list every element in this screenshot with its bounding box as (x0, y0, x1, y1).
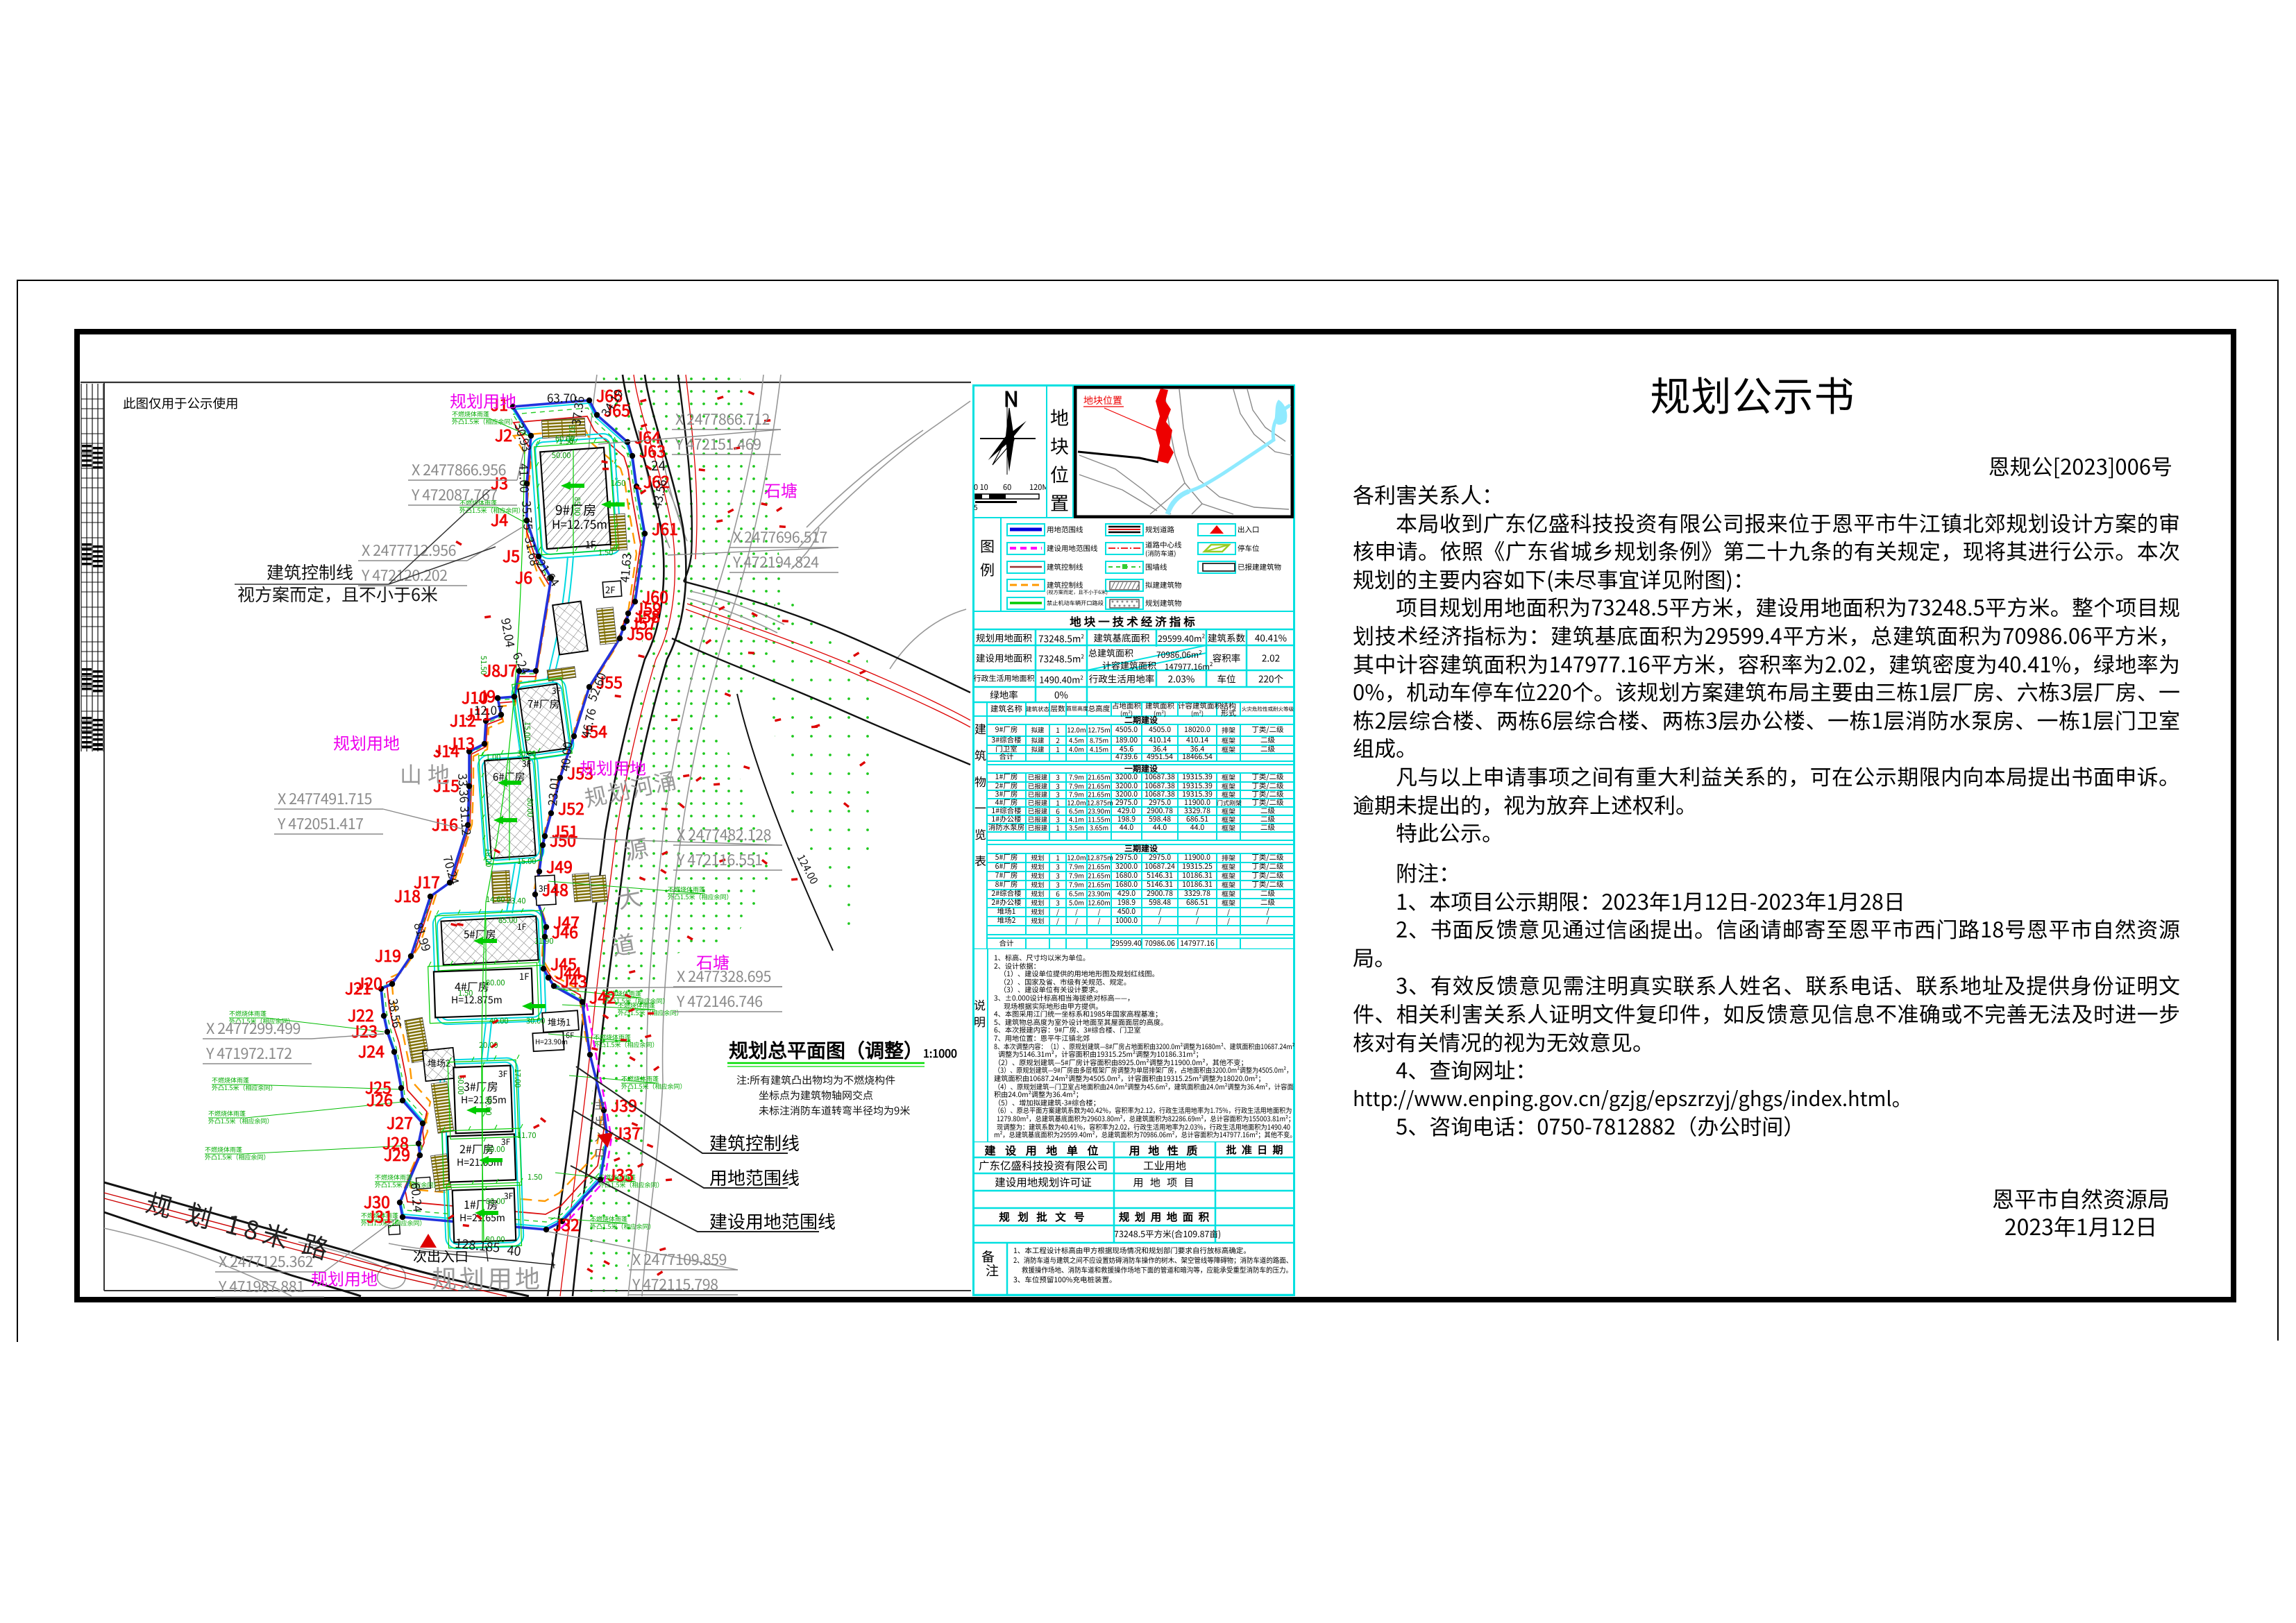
svg-text:H=12.75m: H=12.75m (552, 515, 607, 532)
svg-text:70.24: 70.24 (439, 853, 464, 886)
svg-text:J28: J28 (382, 1130, 409, 1154)
svg-text:Y 472116.551: Y 472116.551 (676, 849, 763, 870)
svg-text:1.00: 1.00 (486, 751, 500, 763)
svg-text:85.00: 85.00 (498, 915, 517, 926)
svg-text:40.00: 40.00 (555, 741, 575, 772)
svg-text:41.00: 41.00 (516, 463, 534, 493)
svg-text:J49: J49 (546, 854, 573, 878)
svg-text:X 2477712.956: X 2477712.956 (362, 539, 456, 561)
svg-text:山地: 山地 (400, 758, 455, 790)
svg-text:80.00: 80.00 (486, 1144, 505, 1155)
svg-text:12.07: 12.07 (474, 701, 503, 718)
svg-text:J8: J8 (483, 658, 500, 681)
svg-text:J20: J20 (356, 971, 382, 994)
svg-text:3F: 3F (504, 1190, 514, 1202)
svg-text:J22: J22 (348, 1003, 374, 1026)
svg-text:J61: J61 (652, 516, 678, 540)
svg-text:Y 472194.824: Y 472194.824 (732, 551, 819, 572)
svg-text:N: N (1004, 384, 1019, 413)
svg-text:60.24: 60.24 (407, 1182, 428, 1212)
svg-text:建筑控制线: 建筑控制线 (267, 559, 353, 584)
svg-text:未标注消防车道转弯半径均为9米: 未标注消防车道转弯半径均为9米 (759, 1103, 910, 1118)
svg-text:规划用地: 规划用地 (311, 1266, 378, 1290)
svg-text:80.00: 80.00 (486, 977, 505, 988)
svg-text:Y 472087.767: Y 472087.767 (411, 484, 498, 505)
svg-text:J32: J32 (553, 1212, 580, 1236)
svg-text:注:所有建筑凸出物均为不燃烧构件: 注:所有建筑凸出物均为不燃烧构件 (736, 1073, 895, 1087)
svg-text:J43: J43 (561, 969, 587, 992)
svg-text:1.50: 1.50 (598, 547, 613, 558)
svg-text:规划用地: 规划用地 (450, 388, 516, 412)
svg-text:17.00: 17.00 (512, 1069, 523, 1087)
svg-text:J13: J13 (448, 731, 475, 754)
svg-text:X 2477866.956: X 2477866.956 (412, 459, 506, 480)
svg-text:X 2477299.499: X 2477299.499 (206, 1017, 301, 1039)
svg-text:J17: J17 (414, 869, 440, 893)
svg-text:J56: J56 (627, 621, 653, 645)
svg-text:坐标点为建筑物轴网交点: 坐标点为建筑物轴网交点 (759, 1088, 873, 1103)
svg-text:J6: J6 (515, 565, 532, 588)
svg-text:1.50: 1.50 (527, 1171, 542, 1182)
svg-text:0 10: 0 10 (974, 482, 988, 493)
svg-text:15.00: 15.00 (517, 856, 536, 867)
svg-text:35.75: 35.75 (518, 500, 538, 531)
svg-text:建设用地范围线: 建设用地范围线 (709, 1208, 836, 1234)
svg-text:J46: J46 (552, 919, 578, 943)
svg-text:80.00: 80.00 (483, 1096, 494, 1115)
svg-text:X 2477491.715: X 2477491.715 (278, 788, 372, 809)
svg-text:23.40: 23.40 (507, 895, 525, 906)
svg-text:30.00: 30.00 (526, 1015, 545, 1026)
svg-text:X 2477696.517: X 2477696.517 (733, 526, 827, 547)
svg-text:用地范围线: 用地范围线 (709, 1164, 800, 1190)
svg-text:J5: J5 (503, 543, 520, 567)
svg-text:120M: 120M (1029, 482, 1046, 493)
svg-text:J2: J2 (495, 423, 512, 446)
svg-text:Y 472051.417: Y 472051.417 (277, 813, 364, 834)
svg-text:37.36: 37.36 (566, 425, 577, 443)
svg-text:1.50: 1.50 (611, 477, 625, 488)
svg-text:J30: J30 (364, 1189, 390, 1213)
svg-text:38.56: 38.56 (385, 997, 407, 1029)
svg-text:J39: J39 (611, 1093, 637, 1116)
svg-text:7#厂房: 7#厂房 (527, 697, 560, 711)
svg-text:Y 471972.172: Y 471972.172 (205, 1042, 292, 1064)
svg-text:视方案而定，且不小于6米: 视方案而定，且不小于6米 (237, 581, 438, 606)
svg-text:J33: J33 (607, 1162, 634, 1186)
svg-text:60: 60 (1003, 482, 1011, 493)
svg-text:J27: J27 (387, 1110, 413, 1134)
svg-text:H=23.90m: H=23.90m (535, 1036, 568, 1046)
svg-text:23.01: 23.01 (543, 776, 563, 806)
svg-text:3F: 3F (498, 1068, 508, 1080)
svg-text:Y 472146.746: Y 472146.746 (676, 990, 763, 1012)
svg-text:31.12: 31.12 (457, 806, 476, 836)
svg-text:1F: 1F (519, 969, 529, 983)
svg-text:Y 472115.798: Y 472115.798 (632, 1273, 718, 1295)
svg-text:80.00: 80.00 (486, 1196, 505, 1207)
svg-text:建筑控制线: 建筑控制线 (709, 1130, 800, 1155)
svg-text:18.00: 18.00 (483, 848, 494, 867)
svg-text:5: 5 (974, 502, 978, 512)
svg-text:石塘: 石塘 (764, 477, 797, 502)
svg-text:Y 472151.469: Y 472151.469 (675, 433, 761, 454)
svg-text:J50: J50 (550, 828, 576, 851)
svg-text:石塘: 石塘 (696, 949, 729, 974)
svg-text:2F: 2F (605, 583, 615, 596)
svg-text:92.04: 92.04 (498, 617, 520, 649)
svg-text:J48: J48 (542, 877, 568, 901)
svg-text:50.00: 50.00 (552, 450, 571, 461)
svg-text:J24: J24 (358, 1039, 385, 1062)
svg-text:堆场2: 堆场2 (428, 1056, 450, 1069)
svg-text:J19: J19 (375, 943, 401, 967)
svg-text:3F: 3F (552, 685, 562, 697)
svg-text:30.00: 30.00 (517, 748, 536, 759)
svg-text:堆场1: 堆场1 (548, 1015, 571, 1028)
svg-text:J16: J16 (432, 812, 458, 835)
svg-text:Y 471987.881: Y 471987.881 (218, 1275, 305, 1297)
svg-text:11.70: 11.70 (517, 1130, 536, 1141)
svg-text:30.93: 30.93 (511, 420, 537, 454)
svg-text:50.00: 50.00 (455, 1076, 466, 1094)
svg-text:1F: 1F (517, 921, 527, 933)
svg-text:J52: J52 (558, 796, 584, 819)
svg-text:3#厂房: 3#厂房 (464, 1078, 498, 1094)
svg-text:1.50: 1.50 (458, 987, 473, 999)
svg-text:40.00: 40.00 (489, 1015, 508, 1026)
svg-text:15.00: 15.00 (522, 722, 533, 740)
svg-text:J25: J25 (365, 1075, 391, 1098)
svg-text:80.00: 80.00 (525, 798, 536, 817)
svg-text:24: 24 (651, 456, 666, 475)
svg-text:14.60: 14.60 (486, 894, 505, 905)
svg-text:33.36: 33.36 (455, 773, 474, 804)
svg-text:规划用地: 规划用地 (432, 1259, 543, 1295)
svg-text:规划总平面图（调整）1:1000: 规划总平面图（调整）1:1000 (729, 1036, 957, 1064)
svg-text:85.00: 85.00 (572, 497, 583, 516)
svg-text:40: 40 (506, 1241, 522, 1260)
svg-text:X 2477866.712: X 2477866.712 (675, 408, 770, 430)
svg-text:41.63: 41.63 (615, 552, 635, 583)
svg-text:J4: J4 (491, 507, 508, 531)
svg-text:地块位置: 地块位置 (1083, 393, 1122, 407)
svg-text:规划用地: 规划用地 (333, 730, 400, 754)
